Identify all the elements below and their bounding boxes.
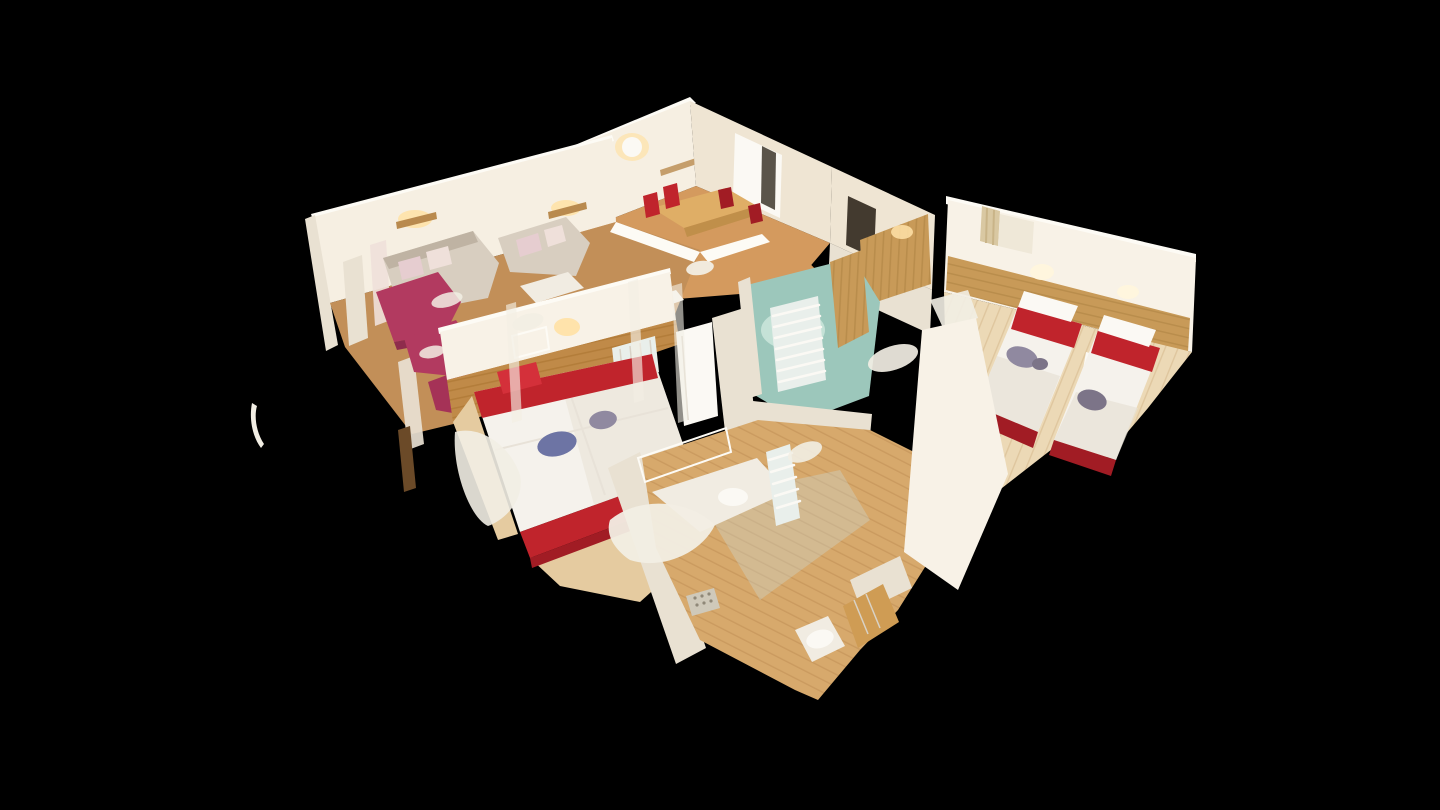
drain-hole [700,594,703,597]
sconce-light [891,225,913,239]
dining-chair [663,183,680,209]
sconce-light [1117,285,1139,299]
dining-chair [643,192,660,218]
curtain-fold [993,210,994,245]
sconce-light [1030,264,1054,280]
drain-hole [707,592,710,595]
sconce-light [554,318,580,336]
dollhouse-3d-viewport[interactable]: Top-down angled 3D dollhouse scan of an … [0,0,1440,810]
sink [718,488,748,506]
dollhouse-render[interactable]: Top-down angled 3D dollhouse scan of an … [0,0,1440,810]
drain-hole [693,596,696,599]
drain-hole [695,603,698,606]
drain-hole [702,601,705,604]
curtain-fold [986,208,987,243]
door-opening [761,146,776,210]
stray-scan-sliver [251,403,264,448]
clothes-on-bed [1032,358,1048,370]
round-wall-light [622,137,642,157]
curtain [980,206,1000,246]
drain-hole [709,599,712,602]
